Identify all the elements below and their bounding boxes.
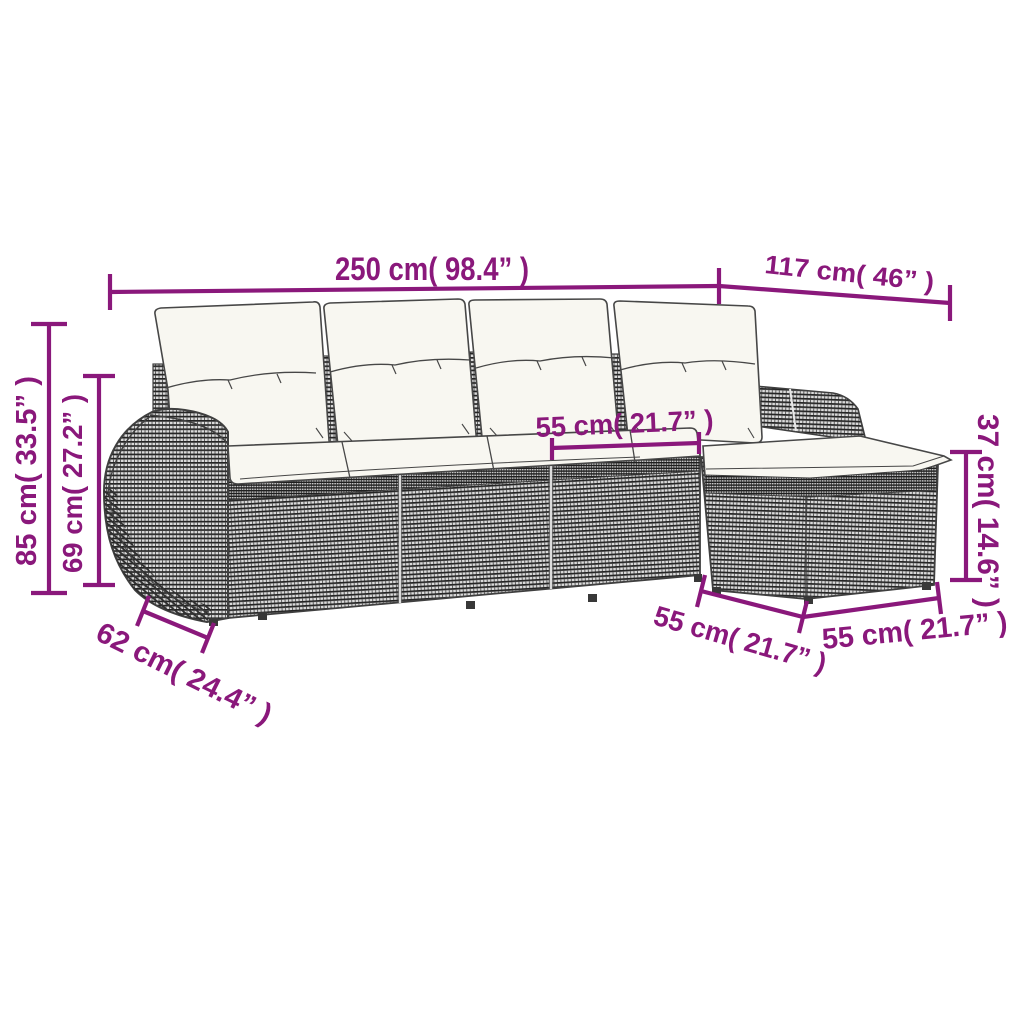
svg-text:37 cm( 14.6” ): 37 cm( 14.6” ) [971, 414, 1004, 608]
svg-text:85 cm( 33.5” ): 85 cm( 33.5” ) [11, 376, 43, 566]
svg-text:69 cm( 27.2” ): 69 cm( 27.2” ) [57, 394, 88, 573]
svg-text:250 cm( 98.4” ): 250 cm( 98.4” ) [335, 251, 529, 287]
svg-text:55 cm( 21.7” ): 55 cm( 21.7” ) [821, 606, 1009, 656]
svg-text:62 cm( 24.4” ): 62 cm( 24.4” ) [91, 617, 277, 731]
